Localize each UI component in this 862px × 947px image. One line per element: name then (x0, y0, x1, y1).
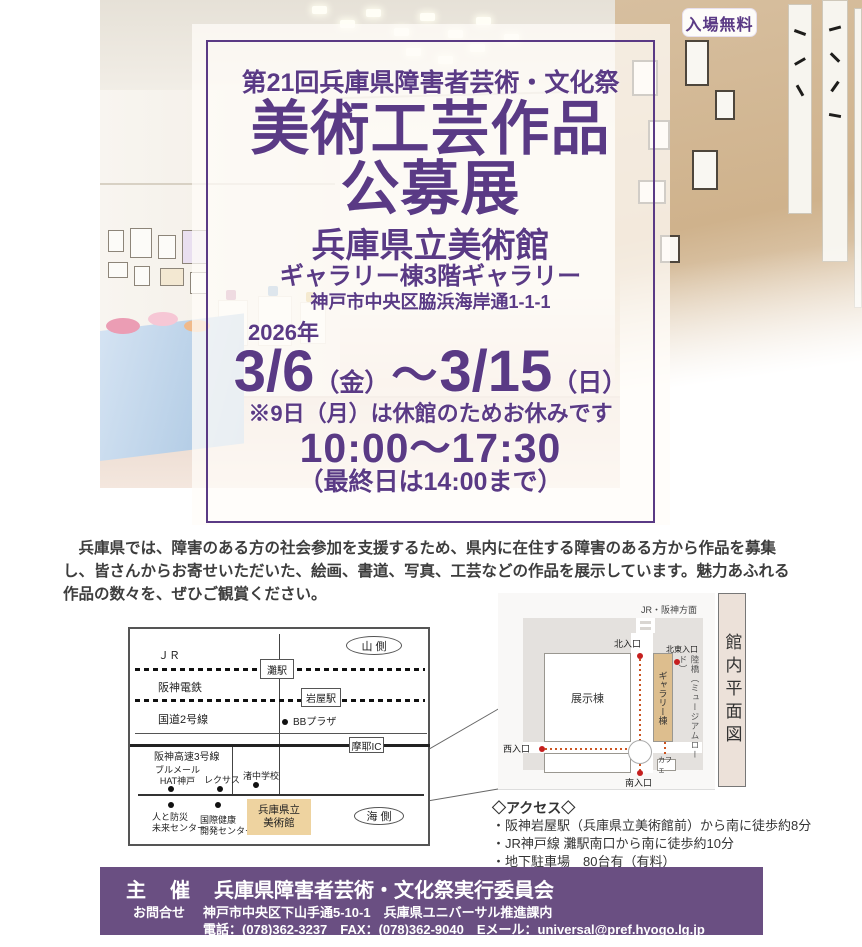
coast-road-line (138, 794, 424, 796)
main-title-line2: 公募展 (208, 159, 653, 219)
nada-station-box: 灘駅 (260, 659, 294, 679)
venue-address: 神戸市中央区脇浜海岸通1-1-1 (208, 293, 653, 312)
artwork-frame (158, 235, 176, 259)
artwork-frame (160, 268, 184, 286)
artwork-frame (130, 228, 152, 258)
contact-tel: 電話：(078)362-3237 FAX：(078)362-9040 Eメール：… (203, 921, 763, 938)
brumaire-label: ブルメール HAT神戸 (155, 765, 200, 787)
artwork-frame (134, 266, 150, 286)
route-gallery-spur (664, 742, 666, 755)
northeast-entrance-label: 北東入口 (666, 644, 698, 655)
date-start: 3/6 (234, 344, 315, 399)
contact-row: お問合せ 神戸市中央区下山手通5-10-1 兵庫県ユニバーサル推進課内 (100, 904, 763, 921)
expressway-line (130, 744, 430, 747)
bb-plaza-label: BBプラザ (293, 717, 336, 728)
access-info: ◇アクセス◇ ・阪神岩屋駅（兵庫県立美術館前）から南に徒歩約8分 ・JR神戸線 … (492, 799, 811, 871)
contact-tel-row: 電話：(078)362-3237 FAX：(078)362-9040 Eメール：… (100, 921, 763, 938)
gallery-building: ギャラリー棟 (653, 653, 673, 742)
cafe-box: カフェ (657, 759, 676, 771)
craft-item (106, 318, 140, 334)
route-west (545, 748, 630, 750)
northeast-entrance-dot (674, 659, 680, 665)
hero-bordered-box: 第21回兵庫県障害者芸術・文化祭 美術工芸作品 公募展 兵庫県立美術館 ギャラリ… (206, 40, 655, 523)
health-center-label: 国際健康 開発センター (200, 815, 254, 837)
access-item: ・JR神戸線 灘駅南口から南に徒歩約10分 (492, 835, 811, 853)
ceiling-light (420, 13, 435, 21)
maya-ic-box: 摩耶IC (349, 737, 384, 753)
south-entrance-dot (637, 770, 643, 776)
access-item: ・阪神岩屋駅（兵庫県立美術館前）から南に徒歩約8分 (492, 817, 811, 835)
venue-detail: ギャラリー棟3階ギャラリー (208, 264, 653, 290)
date-end: 3/15 (439, 344, 552, 399)
museum-box: 兵庫県立 美術館 (247, 799, 311, 835)
organizer-name: 兵庫県障害者芸術・文化祭実行委員会 (214, 874, 554, 903)
nagisa-school-dot (253, 782, 259, 788)
nagisa-school-label: 渚中学校 (243, 771, 279, 782)
expressway-label: 阪神高速3号線 (154, 752, 220, 763)
disaster-center-label: 人と防災 未来センター (152, 812, 206, 834)
admission-badge: 入場無料 (682, 8, 757, 37)
artwork-frame (685, 40, 709, 86)
contact-address: 神戸市中央区下山手通5-10-1 兵庫県ユニバーサル推進課内 (203, 904, 763, 921)
health-center-dot (215, 802, 221, 808)
gallery-building-label: ギャラリー棟 (657, 671, 670, 725)
bridge-label: 陸橋（ミュージアムロード） (677, 655, 701, 773)
artwork-frame (692, 150, 718, 190)
craft-item (148, 312, 178, 326)
opening-hours-note: （最終日は14:00まで） (208, 469, 653, 495)
lexus-dot (217, 786, 223, 792)
bb-plaza-dot (282, 719, 288, 725)
lexus-label: レクサス (204, 775, 240, 786)
area-map: 山 側 ＪＲ 灘駅 阪神電鉄 岩屋駅 国道2号線 BBプラザ 摩耶IC 阪神高速… (128, 627, 430, 846)
sea-side-oval: 海 側 (354, 807, 404, 825)
opening-hours: 10:00～17:30 (208, 427, 653, 469)
route2-label: 国道2号線 (158, 715, 208, 726)
floor-plan-title-strip: 館内平面図 (718, 593, 746, 787)
floor-plan-title: 館内平面図 (720, 633, 745, 748)
hanshin-rail-line (135, 699, 425, 702)
organizer-row: 主 催 兵庫県障害者芸術・文化祭実行委員会 (100, 867, 763, 904)
ceiling-light (312, 6, 327, 14)
event-dates: 3/6 （金） ～ 3/15 （日） (208, 344, 653, 399)
access-title: ◇アクセス◇ (492, 799, 811, 817)
brumaire-dot (168, 786, 174, 792)
mountain-side-oval: 山 側 (346, 636, 402, 655)
south-wing (544, 753, 631, 773)
south-entrance-label: 南入口 (625, 778, 652, 789)
organizer-label: 主 催 (126, 874, 192, 903)
route2-line (135, 733, 427, 734)
floor-plan-map: JR・阪神方面 展示棟 ギャラリー棟 陸橋（ミュージアムロード） 北入口 北東入… (498, 593, 715, 790)
north-entrance-label: 北入口 (614, 639, 641, 650)
main-title-line1: 美術工芸作品 (208, 99, 653, 159)
contact-label: お問合せ (133, 904, 203, 921)
artwork-frame (108, 230, 124, 252)
iwaya-station-box: 岩屋駅 (301, 688, 341, 707)
jr-hanshin-direction-label: JR・阪神方面 (641, 605, 697, 616)
closed-note: ※9日（月）は休館のためお休みです (208, 402, 653, 425)
plaza-circle (628, 740, 652, 764)
exhibition-building: 展示棟 (544, 653, 631, 742)
west-entrance-label: 西入口 (503, 744, 530, 755)
artwork-frame (715, 90, 735, 120)
calligraphy-scroll (788, 4, 812, 214)
footer-bar: 主 催 兵庫県障害者芸術・文化祭実行委員会 お問合せ 神戸市中央区下山手通5-1… (100, 867, 763, 935)
venue-name: 兵庫県立美術館 (208, 228, 653, 264)
disaster-center-dot (168, 802, 174, 808)
date-tilde: ～ (389, 348, 439, 403)
road-vertical (232, 746, 233, 795)
ceiling-light (366, 9, 381, 17)
jr-line-label: ＪＲ (158, 651, 180, 662)
festival-title: 第21回兵庫県障害者芸術・文化祭 (208, 70, 653, 97)
admission-badge-label: 入場無料 (685, 11, 753, 35)
artwork-frame (108, 262, 128, 278)
poster-page: 入場無料 第21回兵庫県障害者芸術・文化祭 美術工芸作品 公募展 兵庫県立美術館… (0, 0, 862, 947)
hanshin-line-label: 阪神電鉄 (158, 683, 202, 694)
